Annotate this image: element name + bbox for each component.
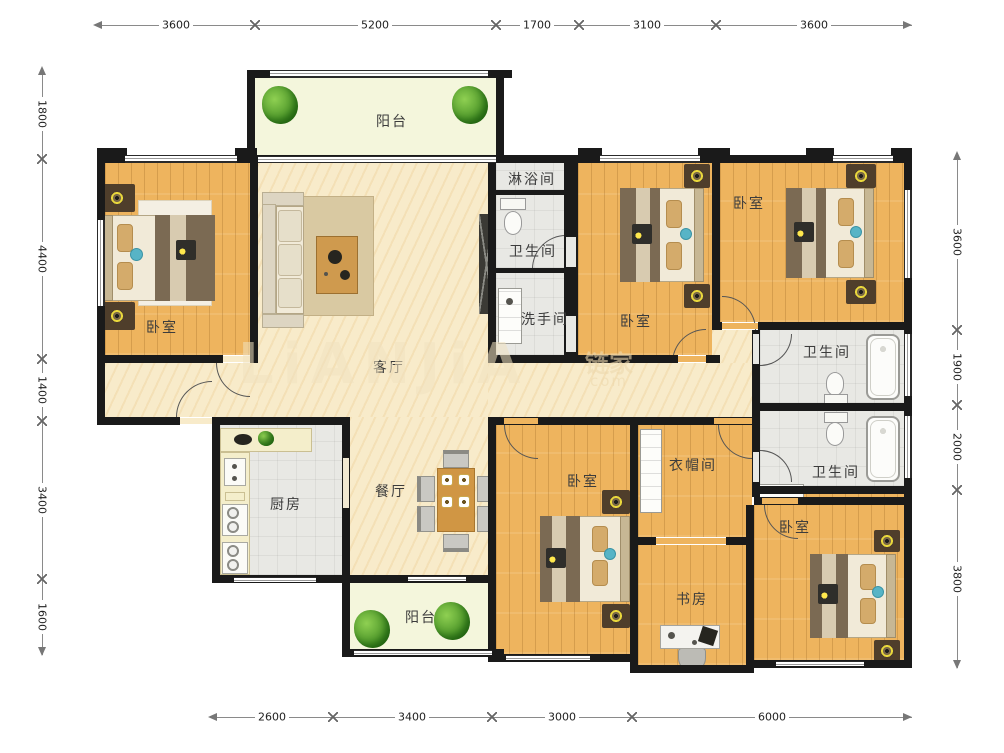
dimension-label: 1800 [36, 97, 49, 131]
dim-arrow [93, 21, 102, 29]
dining-chair [443, 534, 469, 552]
room-label-bathroom-right-1: 卫生间 [803, 342, 851, 362]
dim-arrow [903, 21, 912, 29]
room-label-living: 客厅 [373, 357, 405, 377]
faucet-icon [506, 298, 513, 305]
dimension-label: 3400 [395, 711, 429, 724]
floor-plan: 阳台 卧室 客厅 淋浴间 卫生间 洗手间 卧室 卧室 卫生间 卫生间 厨房 餐厅… [0, 0, 1004, 753]
plant-icon [262, 86, 298, 124]
kitchen-sink-unit [224, 458, 246, 486]
door-opening [566, 237, 576, 267]
wall-segment [638, 665, 754, 673]
lamp-icon [690, 169, 704, 183]
wall-segment [496, 190, 564, 195]
toilet-tank [500, 198, 526, 210]
window [234, 577, 316, 582]
wall-segment [97, 417, 180, 425]
tv-on-dresser [818, 584, 838, 604]
room-label-dining: 餐厅 [375, 481, 407, 501]
bathtub-inner [870, 338, 896, 396]
bed-headboard [620, 516, 630, 602]
window [354, 650, 492, 655]
bed-headboard [694, 188, 704, 282]
dimension-label: 3100 [630, 19, 664, 32]
pillow [592, 560, 608, 586]
bathtub-inner [870, 420, 896, 478]
pillow [838, 198, 854, 226]
vegetable-icon [258, 431, 274, 446]
wall-segment [746, 545, 754, 673]
pillow [666, 200, 682, 228]
wall-corner [806, 148, 834, 163]
window-sliding-door [258, 156, 496, 163]
dim-tick [952, 325, 962, 335]
plant-icon [452, 86, 488, 124]
dim-arrow [38, 647, 46, 656]
passage-opening [656, 538, 726, 544]
wall-segment [706, 355, 720, 363]
room-label-cloakroom: 衣帽间 [669, 455, 717, 475]
toilet-bowl [504, 211, 522, 235]
window [904, 190, 912, 278]
room-label-kitchen: 厨房 [270, 494, 302, 514]
desk-decor-icon [668, 632, 675, 639]
dim-arrow [208, 713, 217, 721]
wall-segment [752, 486, 904, 494]
plant-icon [434, 602, 470, 640]
wall-segment [746, 505, 754, 545]
dim-arrow [903, 713, 912, 721]
wall-segment [712, 163, 720, 330]
knob-icon [232, 464, 237, 469]
wall-segment [758, 322, 904, 330]
dining-chair [417, 506, 435, 532]
wall-segment [488, 355, 578, 363]
dim-tick [711, 20, 721, 30]
wall-segment [212, 417, 220, 583]
wall-segment [488, 417, 496, 662]
room-label-study: 书房 [676, 589, 708, 609]
dimension-label: 1700 [520, 19, 554, 32]
room-label-washroom: 洗手间 [521, 309, 569, 329]
wall-segment [496, 70, 504, 163]
pillow [666, 242, 682, 270]
wall-segment [712, 322, 722, 330]
room-label-shower: 淋浴间 [508, 169, 556, 189]
wall-segment [630, 425, 638, 673]
pillow [117, 224, 133, 252]
wall-segment [752, 403, 904, 411]
door-opening [504, 418, 538, 424]
wall-segment [342, 575, 350, 657]
burner-icon [227, 521, 239, 533]
plate-icon [458, 474, 470, 486]
wardrobe [640, 429, 662, 513]
accent-pillow [872, 586, 884, 598]
wall-segment [97, 355, 223, 363]
wall-segment [496, 268, 564, 273]
pillow [860, 598, 876, 624]
bed-headboard [886, 554, 896, 638]
door-opening [762, 498, 798, 504]
dim-tick [574, 20, 584, 30]
dimension-label: 5200 [358, 19, 392, 32]
toilet-bowl [826, 422, 844, 446]
room-label-bathroom-right-2: 卫生间 [812, 462, 860, 482]
washbasin-cabinet [498, 288, 522, 344]
dining-chair [417, 476, 435, 502]
dining-chair [443, 450, 469, 468]
dimension-label: 3800 [951, 562, 964, 596]
wall-corner [698, 148, 730, 163]
wall-segment [578, 355, 678, 363]
room-label-bedroom-top-left: 卧室 [146, 317, 178, 337]
lamp-icon [854, 285, 868, 299]
lamp-icon [110, 191, 124, 205]
lamp-icon [609, 495, 623, 509]
window [904, 334, 912, 396]
dim-arrow [38, 66, 46, 75]
accent-pillow [850, 226, 862, 238]
room-label-balcony-top: 阳台 [376, 111, 408, 131]
window [600, 155, 700, 163]
accent-pillow [604, 548, 616, 560]
wall-segment [630, 537, 656, 545]
dimension-label: 1900 [951, 350, 964, 384]
window [125, 155, 237, 163]
decor-dot [324, 272, 328, 276]
lamp-icon [880, 534, 894, 548]
room-label-bedroom-center: 卧室 [567, 471, 599, 491]
sofa-cushion [278, 278, 302, 308]
dim-tick [627, 712, 637, 722]
door-opening [223, 356, 250, 362]
dimension-label: 2000 [951, 430, 964, 464]
accent-pillow [680, 228, 692, 240]
coffee-table [316, 236, 358, 294]
sofa-cushion [278, 244, 302, 276]
lamp-icon [880, 644, 894, 658]
wall-segment [488, 163, 496, 363]
tv-on-dresser [176, 240, 196, 260]
dim-arrow [953, 151, 961, 160]
door-opening [714, 418, 752, 424]
room-label-bedroom-top-right: 卧室 [733, 193, 765, 213]
wall-corner [235, 148, 257, 163]
dim-tick [328, 712, 338, 722]
burner-icon [227, 545, 239, 557]
wall-segment [212, 417, 350, 425]
dimension-label: 3600 [951, 225, 964, 259]
lamp-icon [854, 169, 868, 183]
dimension-label: 3400 [36, 483, 49, 517]
window [506, 655, 590, 660]
wall-corner [578, 148, 602, 163]
window [833, 155, 893, 163]
sofa-cushion [278, 210, 302, 242]
dim-tick [491, 20, 501, 30]
dim-tick [37, 416, 47, 426]
door-opening [753, 334, 759, 364]
pillow [838, 240, 854, 268]
knob-icon [232, 476, 237, 481]
plate-icon [441, 474, 453, 486]
floor-hallway [488, 363, 752, 417]
plate-icon [441, 496, 453, 508]
dimension-label: 3600 [159, 19, 193, 32]
dimension-label: 4400 [36, 242, 49, 276]
dim-tick [37, 574, 47, 584]
door-opening [753, 452, 759, 482]
accent-pillow [130, 248, 143, 261]
toilet-bowl [826, 372, 844, 396]
pillow [117, 262, 133, 290]
cutting-board [225, 492, 245, 501]
window [776, 661, 864, 666]
tv-on-dresser [546, 548, 566, 568]
window [270, 70, 488, 78]
room-label-bedroom-top-mid: 卧室 [620, 311, 652, 331]
dim-tick [487, 712, 497, 722]
window [97, 220, 105, 306]
lamp-icon [690, 289, 704, 303]
dim-tick [37, 154, 47, 164]
room-label-bathroom-mid: 卫生间 [509, 241, 557, 261]
window [904, 416, 912, 478]
tv-on-dresser [632, 224, 652, 244]
dimension-line-top [97, 25, 912, 26]
plate-icon [458, 496, 470, 508]
door-opening-entry [180, 418, 212, 424]
door-opening [678, 356, 706, 362]
dim-tick [250, 20, 260, 30]
door-opening [722, 323, 758, 329]
sofa-armrest [262, 314, 304, 328]
room-label-bedroom-bottom-right: 卧室 [779, 517, 811, 537]
bowl-icon [340, 270, 350, 280]
passage-opening [343, 458, 349, 508]
dimension-label: 3600 [797, 19, 831, 32]
plant-icon [354, 610, 390, 648]
window-sliding-door [408, 576, 466, 581]
dimension-label: 2600 [255, 711, 289, 724]
mouse-icon [692, 640, 697, 645]
room-label-balcony-bottom: 阳台 [405, 607, 437, 627]
dim-tick [952, 485, 962, 495]
bed-headboard [864, 188, 874, 278]
dimension-label: 1600 [36, 600, 49, 634]
dimension-label: 1400 [36, 373, 49, 407]
lamp-icon [110, 309, 124, 323]
dimension-label: 6000 [755, 711, 789, 724]
burner-icon [227, 559, 239, 571]
sink-icon [234, 434, 252, 445]
burner-icon [227, 507, 239, 519]
kettle-icon [328, 250, 342, 264]
wall-segment [250, 163, 258, 363]
sofa-back [262, 204, 276, 314]
tv-on-dresser [794, 222, 814, 242]
dimension-label: 3000 [545, 711, 579, 724]
lamp-icon [609, 609, 623, 623]
dim-arrow [953, 660, 961, 669]
dim-tick [37, 354, 47, 364]
dim-tick [952, 400, 962, 410]
